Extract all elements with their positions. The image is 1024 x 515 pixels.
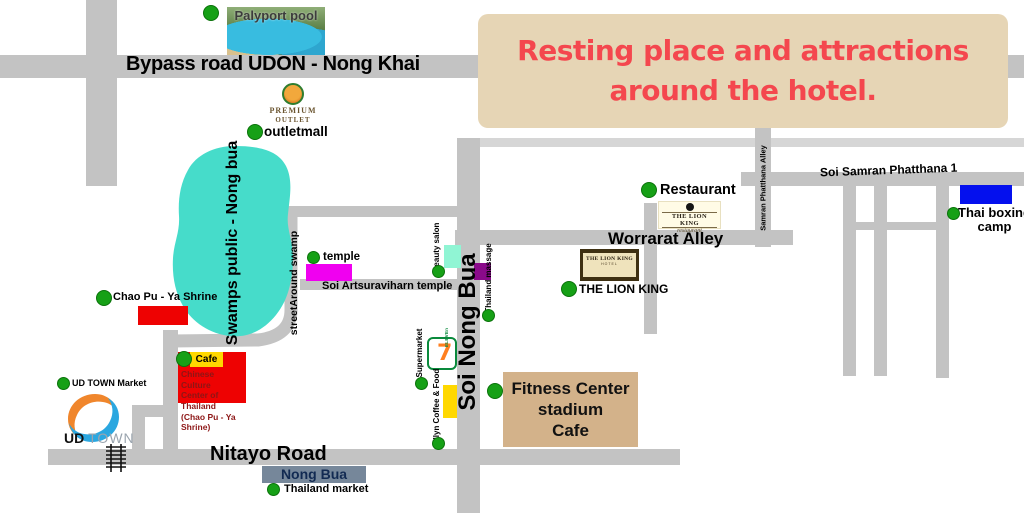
marker-palyport-pool — [203, 5, 219, 21]
road-label-nitayo: Nitayo Road — [210, 444, 327, 465]
road-label-artsuraviharn: Soi Artsuraviharn temple — [322, 281, 452, 293]
palyport-pool-label: Palyport pool — [227, 7, 325, 23]
lion-king-hotel-sign-inner: THE LION KING HOTEL — [583, 253, 636, 277]
road-grid-v1 — [843, 186, 856, 376]
fitness-line2: stadium — [503, 399, 638, 420]
premium-outlet-logo-icon — [282, 83, 304, 105]
thai-boxing-marker-rect — [960, 185, 1012, 204]
road-label-bypass: Bypass road UDON - Nong Khai — [126, 54, 420, 75]
chinese-center-line2: Center of Thailand — [181, 390, 244, 411]
marker-thailand-massage — [482, 309, 495, 322]
marker-outletmall — [247, 124, 263, 140]
road-label-worrarat: Worrarat Alley — [608, 230, 723, 248]
temple-marker-rect — [306, 264, 352, 281]
restaurant-label: Restaurant — [660, 183, 736, 198]
premium-outlet-outlet: OUTLET — [253, 116, 333, 124]
allyn-coffee-label: Allyn Coffee & Food — [433, 369, 441, 445]
marker-chao-pu-ya — [96, 290, 112, 306]
chinese-center-line1: Chinese Culture — [181, 369, 244, 390]
marker-thailand-market — [267, 483, 280, 496]
road-grid-connector — [849, 222, 943, 230]
thailand-market-label: Thailand market — [284, 484, 368, 496]
cafe-label-box: Cafe — [190, 352, 223, 367]
fitness-line1: Fitness Center — [503, 378, 638, 399]
lion-king-hotel-type: HOTEL — [583, 262, 636, 266]
fitness-center-block: Fitness Center stadium Cafe — [503, 372, 638, 447]
ud-town-ud: UD — [64, 430, 84, 446]
lion-king-hotel-label: THE LION KING — [579, 283, 668, 296]
marker-lion-king-hotel — [561, 281, 577, 297]
marker-restaurant — [641, 182, 657, 198]
plate-cutlery-icon — [686, 203, 694, 211]
road-label-soi-nong-bua: Soi Nong Bua — [456, 253, 480, 410]
marker-allyn-coffee — [432, 437, 445, 450]
map-canvas: Resting place and attractions around the… — [0, 0, 1024, 515]
outletmall-label: outletmall — [264, 125, 328, 139]
thai-boxing-label: Thai boxing camp — [958, 206, 1024, 233]
marker-cafe — [176, 351, 192, 367]
road-swamp-east — [285, 206, 460, 217]
thai-boxing-line2: camp — [958, 220, 1024, 234]
road-shrine-vertical — [163, 330, 178, 452]
chao-pu-ya-label: Chao Pu - Ya Shrine — [113, 292, 217, 304]
ud-town-market-label: UD TOWN Market — [72, 379, 146, 388]
marker-beauty-salon — [432, 265, 445, 278]
chinese-center-line3: (Chao Pu - Ya Shrine) — [181, 412, 244, 433]
fitness-line3: Cafe — [503, 420, 638, 441]
supermarket-label: Supermarket — [416, 329, 424, 378]
road-grid-v2 — [874, 186, 887, 376]
premium-outlet-premium: PREMIUM — [253, 106, 333, 115]
marker-supermarket — [415, 377, 428, 390]
ud-town-town: TOWN — [88, 430, 135, 446]
palyport-pool-photo: Palyport pool — [227, 7, 325, 55]
thailand-massage-label: Thailand massage — [485, 243, 493, 312]
thai-boxing-line1: Thai boxing — [958, 206, 1024, 220]
ud-town-logo-text: UD TOWN — [64, 430, 135, 446]
road-top-east — [457, 138, 1024, 147]
marker-thai-boxing — [947, 207, 960, 220]
nong-bua-block: Nong Bua — [262, 466, 366, 483]
marker-fitness-center — [487, 383, 503, 399]
swamp-label: Swamps public - Nong bua — [225, 141, 241, 345]
seven-eleven-eleven: ELEVEn — [444, 328, 449, 347]
map-title-line1: Resting place and attractions — [478, 31, 1008, 71]
lion-king-hotel-sign: THE LION KING HOTEL — [580, 249, 639, 281]
road-topleft-vertical — [86, 0, 117, 186]
lion-king-restaurant-name: THE LION KING — [662, 212, 717, 228]
temple-label: temple — [323, 251, 360, 263]
marker-temple — [307, 251, 320, 264]
map-title-line2: around the hotel. — [478, 71, 1008, 111]
road-restaurant-vertical — [644, 203, 657, 334]
map-title: Resting place and attractions around the… — [478, 14, 1008, 128]
lion-king-restaurant-sign: THE LION KING restaurant — [658, 201, 721, 229]
road-label-street-around-swamp: streetAround swamp — [289, 231, 300, 335]
marker-ud-town-market — [57, 377, 70, 390]
seven-eleven-logo: 7 ELEVEn — [427, 337, 457, 370]
road-label-samran-alley: Samran Phatthana Alley — [759, 145, 767, 231]
shrine-marker-rect — [138, 306, 188, 325]
